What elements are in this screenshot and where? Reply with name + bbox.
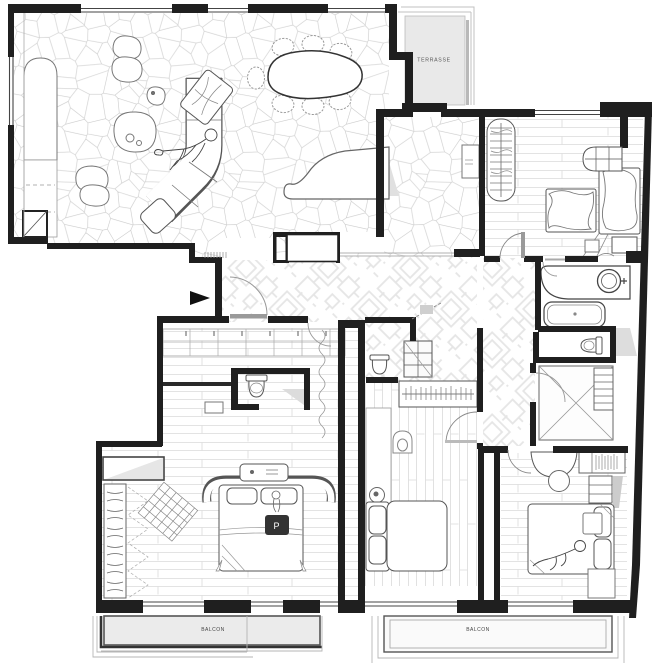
svg-text:P: P — [273, 521, 279, 531]
svg-text:BALCON: BALCON — [466, 627, 490, 633]
svg-text:TERRASSE: TERRASSE — [417, 58, 451, 64]
svg-text:BALCON: BALCON — [201, 627, 225, 633]
